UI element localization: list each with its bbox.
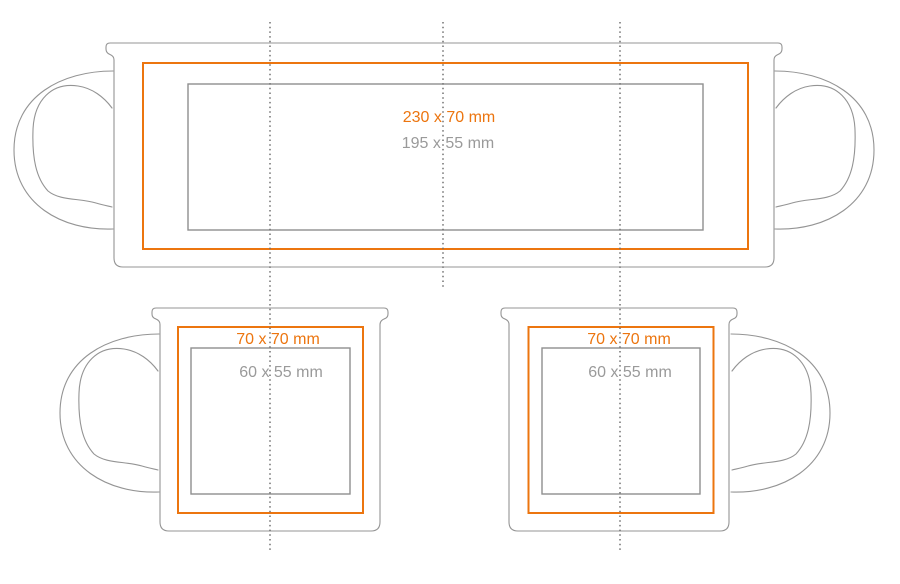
small-mug-right-print-area-label: 70 x 70 mm (587, 331, 671, 348)
small-mug-left-handle-inner-line (79, 348, 158, 470)
large-mug-left-handle-outer-line (14, 71, 113, 229)
large-mug-left-handle-inner-line (33, 85, 112, 207)
large-mug-print-area-label: 230 x 70 mm (403, 109, 495, 126)
large-mug-right-handle-inner-line (776, 85, 855, 207)
large-mug-right-handle (775, 71, 874, 229)
large-mug-right-handle-outer-line (775, 71, 874, 229)
mug-print-area-diagram: 230 x 70 mm 195 x 55 mm 70 x 70 mm 60 x … (0, 0, 900, 584)
small-mug-right-safe-area-label: 60 x 55 mm (588, 364, 672, 381)
large-mug-left-handle (14, 71, 113, 229)
small-mug-left-print-area-label: 70 x 70 mm (236, 331, 320, 348)
diagram-canvas: 230 x 70 mm 195 x 55 mm 70 x 70 mm 60 x … (0, 0, 900, 584)
small-mug-left (60, 308, 388, 531)
small-mug-right-handle-outer-line (731, 334, 830, 492)
small-mug-right-handle-inner-line (732, 348, 811, 470)
small-mug-left-handle (60, 334, 159, 492)
large-mug-safe-area-label: 195 x 55 mm (402, 135, 494, 152)
large-mug-body (106, 43, 782, 267)
small-mug-left-safe-area-label: 60 x 55 mm (239, 364, 323, 381)
small-mug-right-handle (731, 334, 830, 492)
small-mug-left-handle-outer-line (60, 334, 159, 492)
